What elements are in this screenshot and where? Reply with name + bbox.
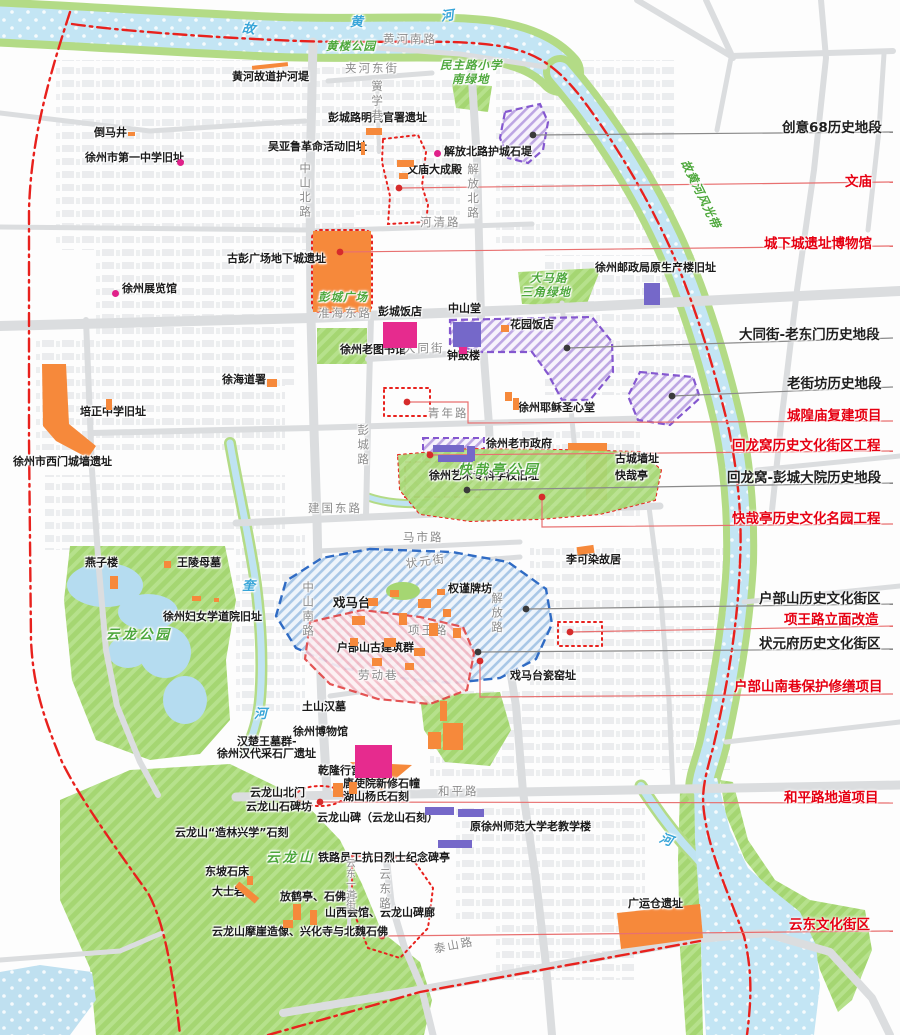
laojiefang-district <box>628 372 700 425</box>
callout-dot <box>404 399 411 406</box>
quarry-site <box>350 762 412 791</box>
xuzhou-historic-sites-map: 黄河故道护河堤倒马井徐州市第一中学旧址彭城路明代官署遗址吴亚鲁革命活动旧址解放北… <box>0 0 900 1035</box>
callout-dot <box>669 393 676 400</box>
heping-road <box>236 785 900 797</box>
base-map <box>0 0 900 1035</box>
callout-dot <box>523 606 530 613</box>
callout-dot <box>427 452 434 459</box>
callout-dot <box>530 132 537 139</box>
callout-line <box>320 802 893 803</box>
callout-dot <box>464 487 471 494</box>
datongjie-laodongmen-district <box>450 317 613 400</box>
callout-dot <box>337 249 344 256</box>
pengcheng-square-site <box>313 231 371 312</box>
hubushan-south-district <box>305 610 474 704</box>
callout-dot <box>539 494 546 501</box>
callout-dot <box>564 345 571 352</box>
callout-dot <box>396 185 403 192</box>
callout-dot <box>567 629 574 636</box>
callout-dot <box>379 933 386 940</box>
callout-dot <box>317 799 324 806</box>
callout-dot <box>475 649 482 656</box>
callout-dot <box>477 658 484 665</box>
